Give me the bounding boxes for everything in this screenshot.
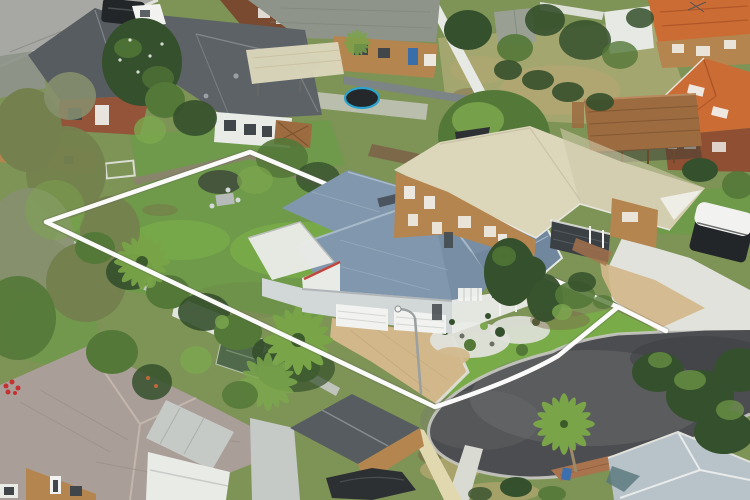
shade-canopy	[198, 170, 242, 194]
garage-skillion	[250, 418, 300, 500]
white-door	[95, 105, 109, 125]
front-door	[432, 304, 442, 320]
blue-door	[408, 48, 418, 65]
recycling-bin	[561, 468, 572, 481]
aerial-photo-canvas: Aerial drone photograph of a suburban re…	[0, 0, 750, 500]
lamp-head	[395, 306, 401, 312]
deck-stairs	[572, 102, 584, 128]
trampoline	[345, 88, 379, 108]
aerial-photo: Aerial drone photograph of a suburban re…	[0, 0, 750, 500]
